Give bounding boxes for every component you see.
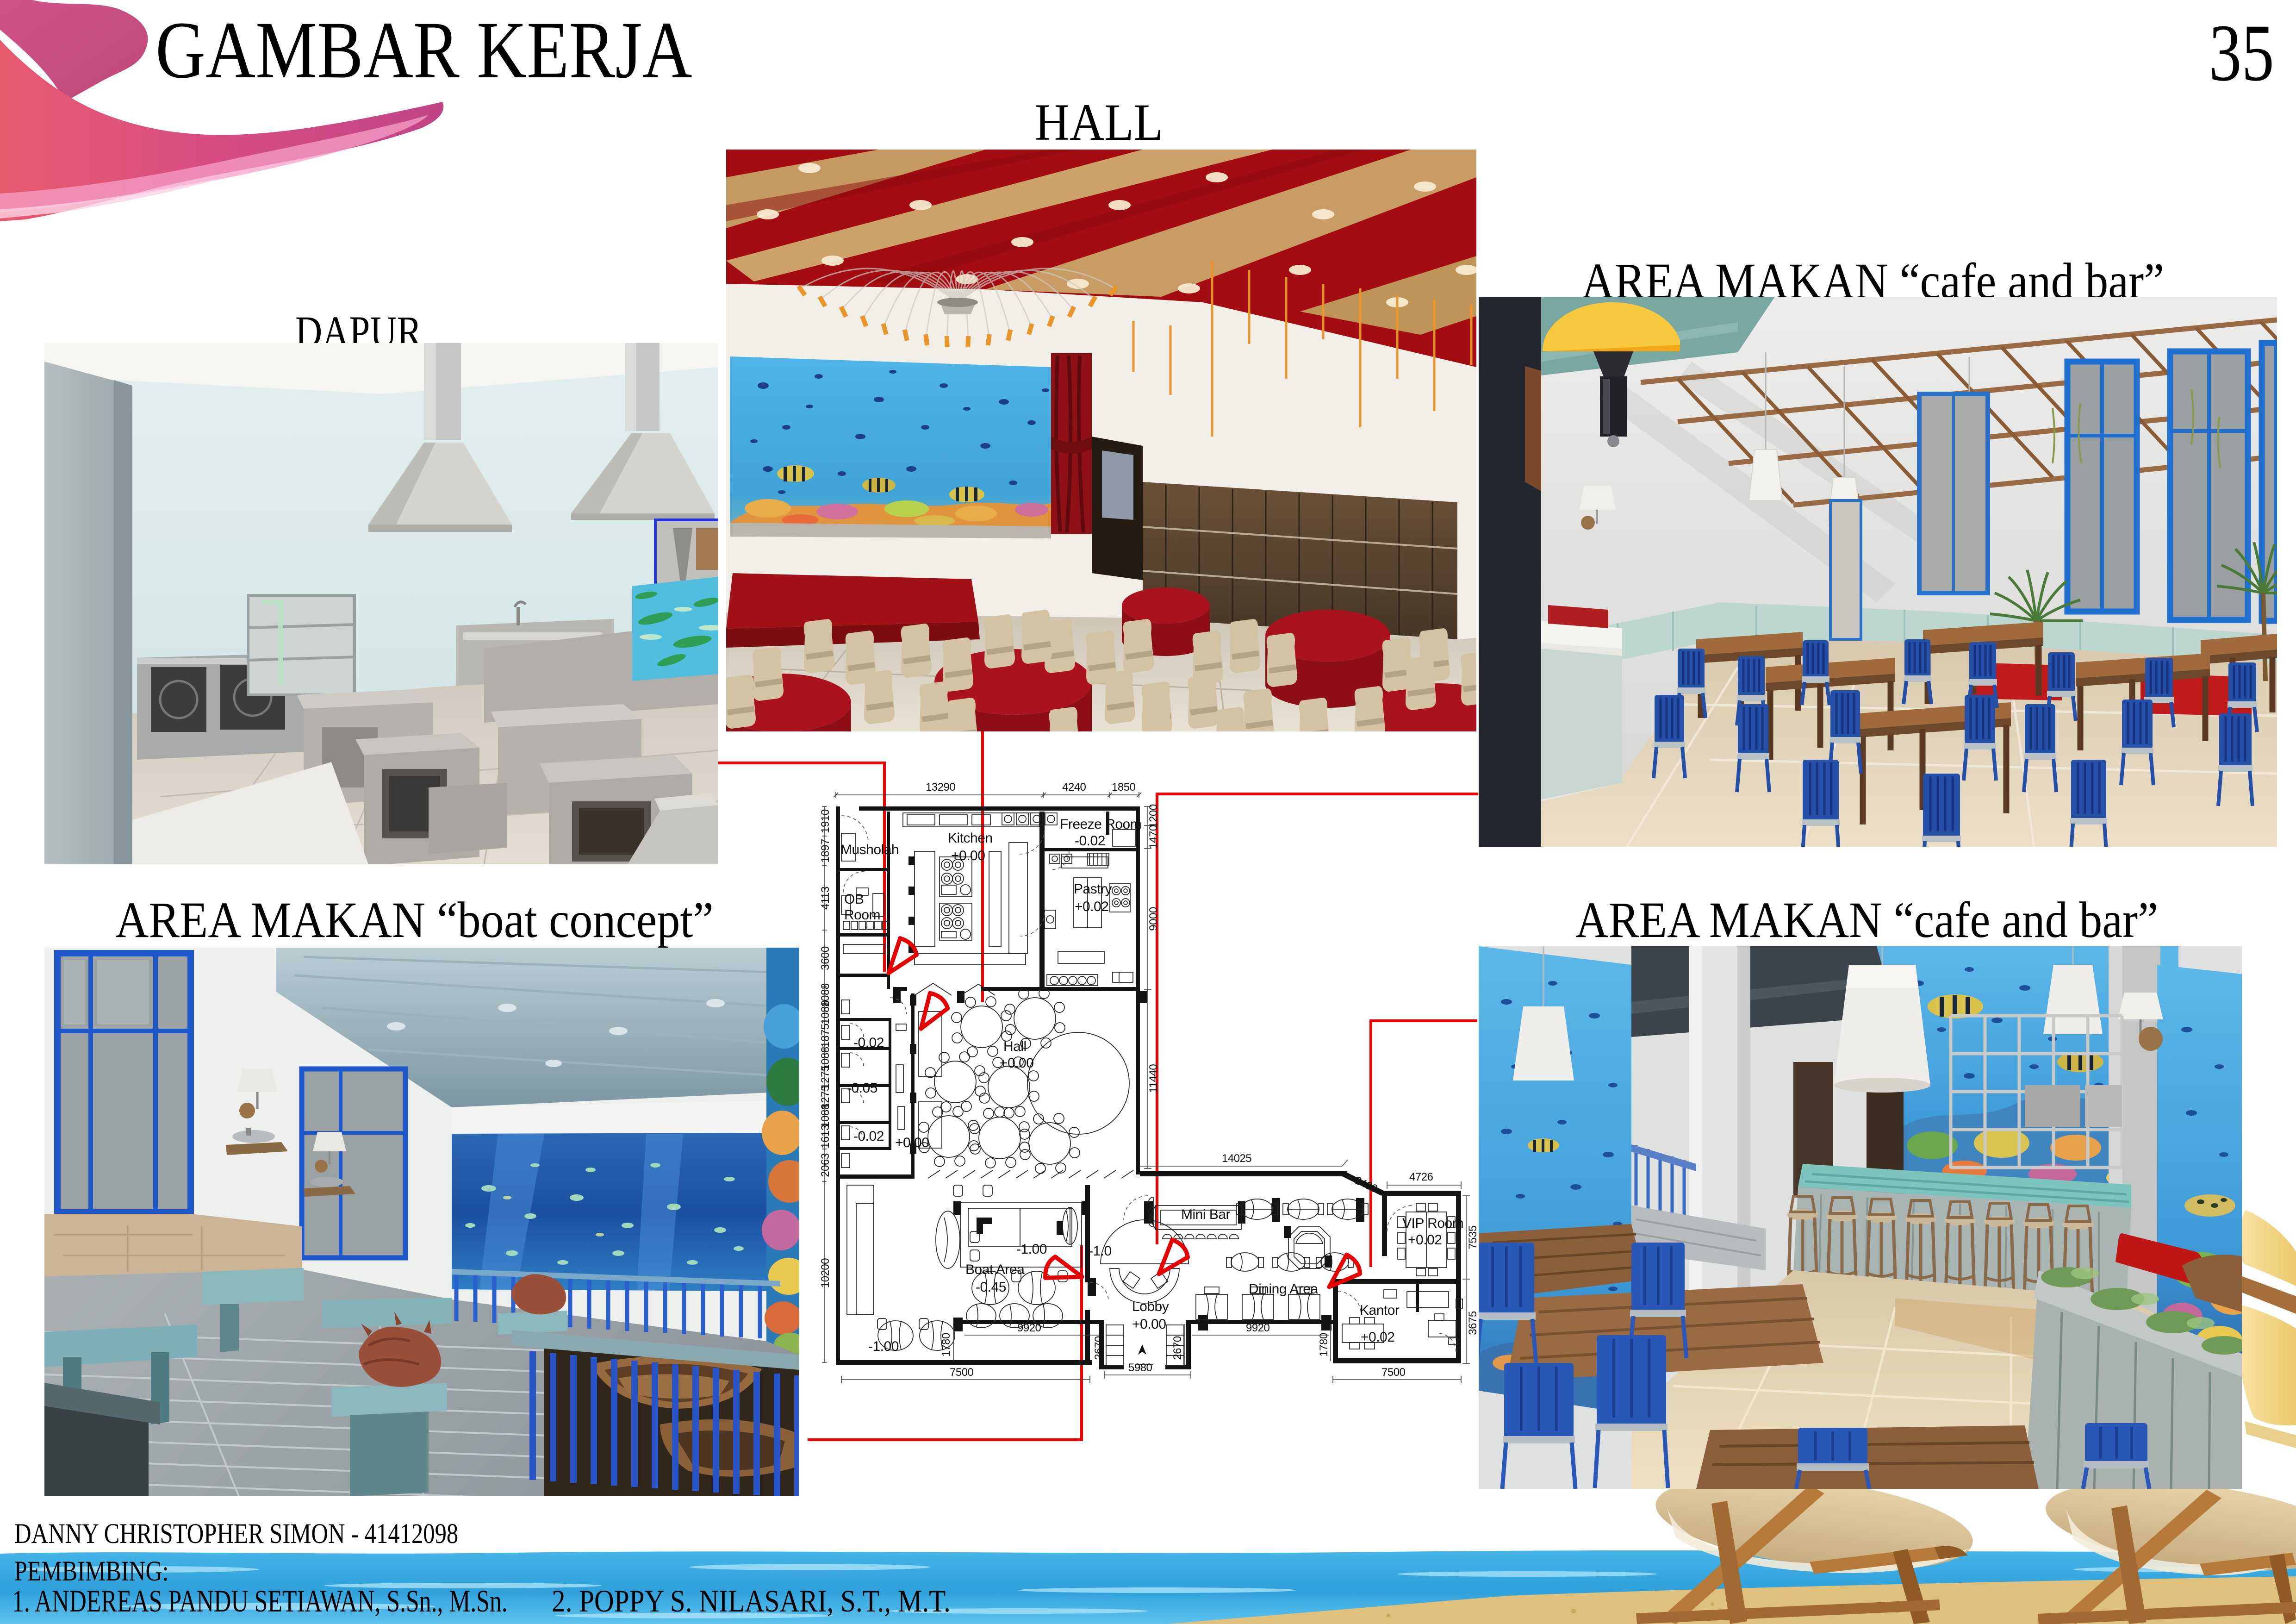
svg-text:1850: 1850	[1112, 782, 1136, 793]
svg-text:3600: 3600	[819, 946, 832, 970]
svg-text:1088: 1088	[819, 1104, 832, 1128]
svg-text:10200: 10200	[819, 1258, 832, 1288]
svg-text:OB: OB	[844, 892, 864, 907]
svg-text:Room: Room	[844, 907, 880, 923]
svg-text:7535: 7535	[1467, 1225, 1479, 1249]
svg-text:7500: 7500	[950, 1366, 974, 1379]
svg-text:Dining Area: Dining Area	[1249, 1281, 1318, 1297]
svg-text:-0.02: -0.02	[853, 1035, 884, 1050]
svg-text:-1.0: -1.0	[1089, 1243, 1112, 1259]
svg-text:-0.05: -0.05	[847, 1081, 877, 1096]
svg-text:Kantor: Kantor	[1360, 1303, 1400, 1318]
svg-text:1613: 1613	[819, 1124, 832, 1149]
svg-text:11440: 11440	[1147, 1064, 1160, 1093]
svg-text:1200: 1200	[1147, 804, 1160, 828]
svg-text:7500: 7500	[1381, 1366, 1406, 1379]
svg-text:Musholah: Musholah	[840, 842, 899, 857]
svg-text:Mini Bar: Mini Bar	[1181, 1207, 1231, 1222]
svg-text:-0.02: -0.02	[853, 1129, 884, 1144]
svg-text:-0.02: -0.02	[1075, 833, 1105, 849]
svg-text:+0.00: +0.00	[895, 1135, 929, 1150]
svg-text:Lobby: Lobby	[1132, 1299, 1169, 1314]
svg-text:9920: 9920	[1017, 1322, 1041, 1334]
svg-text:+0.00: +0.00	[1132, 1317, 1166, 1332]
svg-text:Pastry: Pastry	[1074, 881, 1112, 897]
svg-text:-0.45: -0.45	[976, 1280, 1006, 1295]
svg-text:1088: 1088	[819, 1000, 832, 1024]
svg-text:+0.02: +0.02	[1361, 1330, 1394, 1345]
svg-text:Freeze Room: Freeze Room	[1060, 817, 1141, 832]
svg-text:5980: 5980	[1128, 1362, 1152, 1374]
svg-text:1780: 1780	[1318, 1333, 1330, 1357]
svg-text:2670: 2670	[1171, 1336, 1184, 1360]
svg-text:14025: 14025	[1222, 1152, 1251, 1165]
svg-text:Boat Area: Boat Area	[965, 1262, 1025, 1277]
svg-text:4726: 4726	[1409, 1171, 1433, 1183]
svg-text:2400: 2400	[1352, 1174, 1379, 1195]
svg-text:+0.00: +0.00	[1000, 1056, 1033, 1071]
svg-text:1910: 1910	[819, 809, 832, 833]
svg-text:2063: 2063	[819, 1153, 832, 1177]
svg-text:-1.00: -1.00	[868, 1339, 899, 1354]
svg-text:9920: 9920	[1246, 1322, 1270, 1334]
svg-text:1780: 1780	[940, 1333, 952, 1357]
svg-text:+0.02: +0.02	[1075, 899, 1108, 914]
svg-text:3675: 3675	[1467, 1311, 1479, 1335]
svg-text:9000: 9000	[1147, 907, 1160, 931]
svg-text:Hall: Hall	[1003, 1039, 1027, 1054]
svg-text:Kitchen: Kitchen	[948, 831, 993, 846]
svg-text:+0.00: +0.00	[951, 848, 985, 863]
svg-text:+0.02: +0.02	[1408, 1232, 1442, 1248]
svg-text:2670: 2670	[1093, 1336, 1105, 1360]
svg-text:13290: 13290	[926, 782, 955, 793]
svg-text:-1.00: -1.00	[1016, 1242, 1047, 1257]
svg-text:4113: 4113	[819, 887, 832, 910]
svg-text:1470: 1470	[1147, 825, 1160, 849]
svg-text:1875: 1875	[819, 1024, 832, 1048]
svg-text:VIP Room: VIP Room	[1402, 1216, 1463, 1231]
svg-text:4240: 4240	[1062, 782, 1086, 793]
svg-text:1897: 1897	[819, 839, 832, 863]
